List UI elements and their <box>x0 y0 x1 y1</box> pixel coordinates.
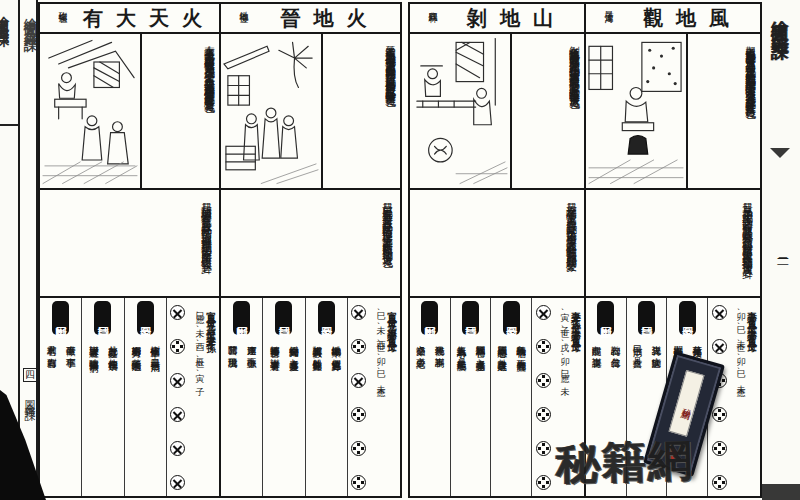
section-shan-di-bo: 鷹鷂同林 剝地山 <box>410 4 584 496</box>
coin-toss-icons <box>534 303 552 492</box>
coin-toss-icons <box>350 303 368 492</box>
coin-back-icon <box>351 305 366 320</box>
shi-group: 詩曰 鋤得金卦問如何 占者逢之喜慶多運轉時來多慶合 謀求事事皆有意 <box>263 298 305 496</box>
illustration-hawk-kite-same-forest <box>410 34 512 188</box>
divination-block: 斷曰 運逢雨露 不敢強嫌雲開見日 飛騰出現 詩曰 鋤得金卦問如何 占者逢之喜慶多… <box>221 296 400 496</box>
left-page: 砍樹摸雀 有大天火 <box>38 2 402 498</box>
duan-group: 斷曰 運逢雨露 不敢強嫌雲開見日 飛騰出現 <box>221 298 263 496</box>
section-subtitle: 旱蓮逢河 <box>589 4 615 32</box>
intro-text: 觀者觀也人皆觀望故有旱蓮逢河之象乃是一池蓮花正當乏旱之時池乾花涸全不滋潤忽然天降… <box>688 34 760 188</box>
duan-label: 斷曰 <box>421 301 438 335</box>
yao-branches: 巳、未、酉世、卯、巳、未應 <box>368 303 386 492</box>
coin-back-icon <box>170 441 185 456</box>
section-huo-di-jin: 鋤地得金 晉地火 <box>219 4 400 496</box>
left-spine-fold: 繪圖金錢課 四 圖金錢課 <box>18 0 38 500</box>
yao-coin-column: 巳應、未、酉、辰世、寅、子 官鬼父母兄弟父母妻才子孫 <box>167 298 219 496</box>
clipped-spine-title: 繪圖金錢課 <box>0 4 11 24</box>
spine-page-mark: 四 <box>23 368 37 382</box>
intro-text: 剝者落也陰勝陽衰故有鷹鷂同林之象此乃一小鷂天晚棲宿大林之中不想鷹見鷂即生惡意占此… <box>512 34 584 188</box>
page-number: 二一 <box>774 248 791 256</box>
duan-group: 斷曰 憂慮不做 拿穩下手君求名利 到處自有 <box>40 298 82 496</box>
story-text: 昔日李淵在隋文帝駕下為臣偶占此卦果然太子楊廣有謀害之心遂即辭朝而去就如鷹鷂同林之… <box>410 190 584 296</box>
right-fold-strip: 繪圖金錢課 二一 <box>762 0 800 500</box>
hexagram-title: 有大天火 <box>69 5 216 32</box>
section-header: 旱蓮逢河 觀地風 <box>586 4 760 34</box>
coin-back-icon <box>170 407 185 422</box>
shi-text: 鷹鷂同林不相合 占者逢之禍患多 <box>471 338 490 490</box>
right-page: 鷹鷂同林 剝地山 <box>408 2 762 498</box>
coin-back-icon <box>170 305 185 320</box>
spine-lower-title: 圖金錢課 <box>22 392 37 404</box>
fishtail-mark-icon <box>770 148 790 158</box>
coin-face-icon <box>170 339 185 354</box>
coin-face-icon <box>536 441 551 456</box>
coin-back-icon <box>170 475 185 490</box>
shi-group: 詩曰 鷹鷂同林不相合 占者逢之禍患多人無義氣為心事 是非平地起風波 <box>451 298 492 496</box>
xiang-label: 彖曰 <box>679 301 696 335</box>
coin-face-icon <box>351 441 366 456</box>
coin-back-icon <box>712 339 727 354</box>
coin-face-icon <box>536 339 551 354</box>
coin-toss-icons <box>169 303 187 492</box>
scan-smudge <box>762 484 800 500</box>
shi-text: 鋤得金卦問如何 占者逢之喜慶多 <box>284 338 303 490</box>
story-text: 昔日孔子弟子端木賜年幼之時貧而無諂占遇此卦果然存心貿易貨財殖焉後來富而無驕卻如旱… <box>586 190 760 296</box>
watermark-text: 秘籍網 <box>555 429 766 493</box>
shi-label: 詩曰 <box>462 301 479 335</box>
divination-block: 斷曰 憂慮不做 拿穩下手君求名利 到處自有 詩曰 此卦占之好處多 件件穩當得到手… <box>40 296 219 496</box>
coin-face-icon <box>351 407 366 422</box>
coin-back-icon <box>351 373 366 388</box>
coin-back-icon <box>536 305 551 320</box>
duan-text: 憂慮不做 拿穩下手 <box>61 338 80 490</box>
shi-group: 詩曰 此卦占之好處多 件件穩當得到手謀望求財皆遂意 時來運轉樂無窮 <box>82 298 124 496</box>
shi-text: 此卦占之好處多 件件穩當得到手 <box>103 338 122 490</box>
xiang-text: 砍樹摸雀作事牢 是非口舌自然消 <box>145 338 164 490</box>
spine-title: 繪圖金錢課 <box>21 8 38 33</box>
section-header: 鷹鷂同林 剝地山 <box>410 4 584 34</box>
yao-names: 官鬼父母兄弟妻才官鬼父母 <box>386 303 398 492</box>
xiang-label: 彖曰 <box>503 301 520 335</box>
yao-branches: 巳應、未、酉、辰世、寅、子 <box>187 303 205 492</box>
coin-face-icon <box>536 475 551 490</box>
duan-label: 斷曰 <box>233 301 250 335</box>
hexagram-title: 晉地火 <box>250 5 397 32</box>
intro-text: 大有者寬也大中而上不應故有砍樹摸雀之兆乃是一人偶見樹上一黃雀有心上去摸之恐其驚飛… <box>142 34 219 188</box>
coin-face-icon <box>351 339 366 354</box>
xiang-group: 彖曰 鋤地鋤出銀子來 這個運氣也算好誰想賀喜將人數 般般件件皆如意 <box>306 298 348 496</box>
duan-label: 斷曰 <box>52 301 69 335</box>
section-subtitle: 砍樹摸雀 <box>43 4 69 32</box>
coin-face-icon <box>351 475 366 490</box>
fold-book-title: 繪圖金錢課 <box>768 6 791 36</box>
duan-group: 斷曰 先難後易 謀事不利交遇節令 事必定成 <box>410 298 451 496</box>
watermark-book-label: 秘籍網 <box>669 370 705 437</box>
section-subtitle: 鋤地得金 <box>224 4 250 32</box>
illustration-dry-lotus-meets-river <box>586 34 688 188</box>
coin-face-icon <box>536 407 551 422</box>
story-text: 昔日郭巨夫婦至孝家貧曾占此卦果然因他母親埋子掘出黃金子數錠即如鋤地得金之兆也 <box>221 190 400 296</box>
illustration-hoe-field-find-gold <box>221 34 323 188</box>
coin-face-icon <box>712 407 727 422</box>
illustration-chop-tree-catch-sparrow <box>40 34 142 188</box>
coin-face-icon <box>536 373 551 388</box>
xiang-label: 彖曰 <box>137 301 154 335</box>
shi-label: 詩曰 <box>638 301 655 335</box>
shi-label: 詩曰 <box>94 301 111 335</box>
section-header: 鋤地得金 晉地火 <box>221 4 400 34</box>
story-text: 昔日胡迪顓頊寶妻含冤仁美曾占此卦果然到丁適庭掘得賞軍糧餉到手方能全勝即了砍樹摸雀… <box>40 190 219 296</box>
xiang-group: 彖曰 鷂鳥天晚宿林中 不知林內先有鷹鷹鷂同處心生惡 卦占逢之事難成 <box>491 298 532 496</box>
intro-text: 晉者進也明出地上故有鋤地得金之象乃是一農人鋤田挖開甚是窮苦一日鋤地鋤出金條是得晉… <box>323 34 400 188</box>
hexagram-title: 觀地風 <box>615 5 757 32</box>
xiang-label: 彖曰 <box>318 301 335 335</box>
yao-names: 官鬼父母兄弟父母妻才子孫 <box>205 303 217 492</box>
yao-coin-column: 巳、未、酉世、卯、巳、未應 官鬼父母兄弟妻才官鬼父母 <box>348 298 400 496</box>
fold-tick-line <box>0 124 20 126</box>
coin-back-icon <box>170 373 185 388</box>
xiang-text: 鷂鳥天晚宿林中 不知林內先有鷹 <box>511 338 530 490</box>
xiang-text: 鋤地鋤出銀子來 這個運氣也算好 <box>326 338 345 490</box>
duan-label: 斷曰 <box>597 301 614 335</box>
xiang-group: 彖曰 砍樹摸雀作事牢 是非口舌自然消婚姻合彩不費力 若問失物未能逃 <box>125 298 167 496</box>
section-header: 砍樹摸雀 有大天火 <box>40 4 219 34</box>
coin-back-icon <box>712 305 727 320</box>
duan-text: 運逢雨露 不敢強嫌 <box>242 338 261 490</box>
scanned-book-page: 繪圖金錢課 繪圖金錢課 四 圖金錢課 砍樹摸雀 有大天火 <box>0 0 800 500</box>
section-subtitle: 鷹鷂同林 <box>413 4 439 32</box>
shi-label: 詩曰 <box>275 301 292 335</box>
hexagram-title: 剝地山 <box>439 5 581 32</box>
duan-text: 先難後易 謀事不利 <box>430 338 449 490</box>
section-huo-tian-da-you: 砍樹摸雀 有大天火 <box>40 4 219 496</box>
